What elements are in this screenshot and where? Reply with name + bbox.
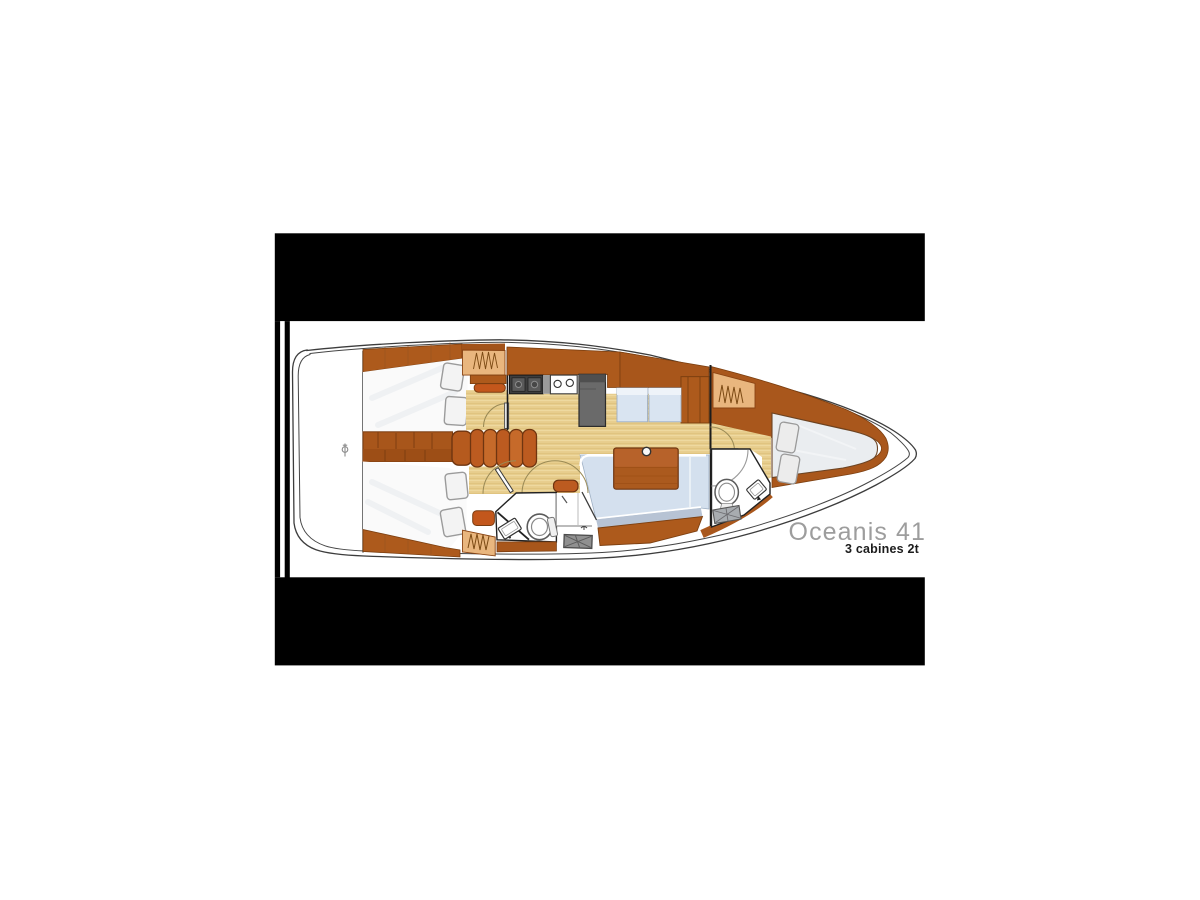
svg-text:3 cabines 2t: 3 cabines 2t — [845, 542, 920, 556]
